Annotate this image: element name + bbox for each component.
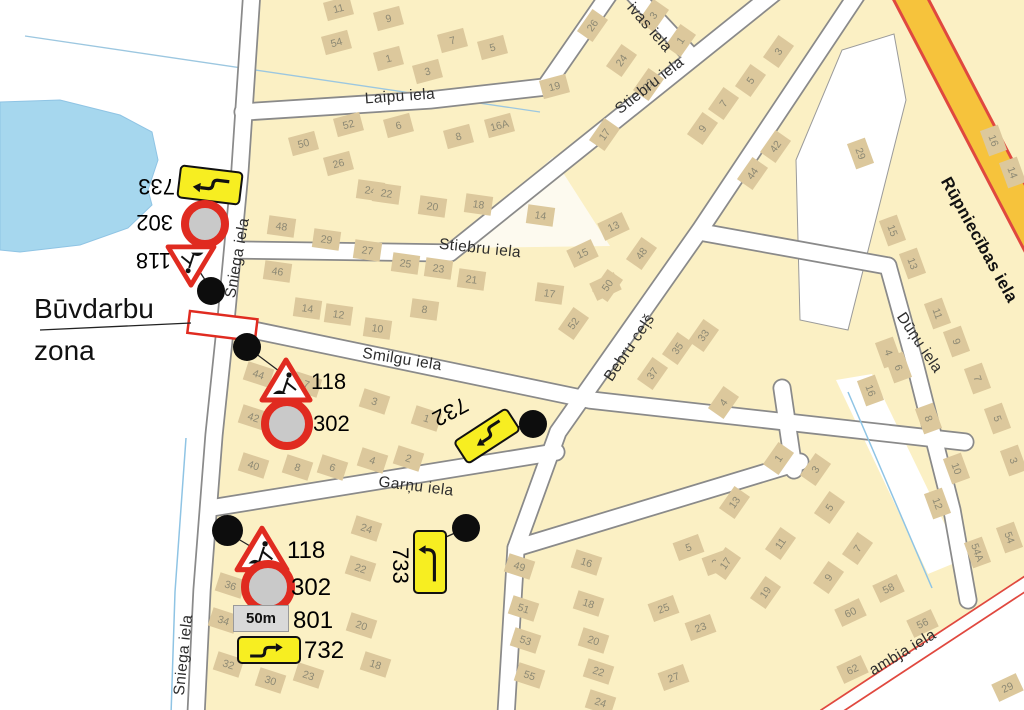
sign-number-733: 733 [387,547,413,591]
detour-sign-733-bottom [413,530,447,594]
sign-number-118: 118 [311,369,346,395]
distance-plate-text: 50m [246,610,276,627]
map-canvas: 1195417535268502616A19201814242248292725… [0,0,1024,710]
no-vehicles-sign-302-mid [261,398,313,450]
turn-arrow-icon [415,532,445,592]
house-number: 12 [323,303,352,326]
sign-number-801: 801 [293,607,333,635]
house-number: 22 [371,182,400,205]
sign-number-302: 302 [291,574,331,602]
house-number: 18 [463,193,492,216]
turn-arrow-icon [239,638,299,662]
distance-plate-801: 50m [233,605,289,632]
house-number: 14 [525,204,554,227]
house-number: 21 [456,268,485,291]
zone-label-line1: Būvdarbu [34,288,154,330]
house-number: 17 [534,282,563,305]
house-number: 23 [423,257,452,280]
house-number: 20 [417,195,446,218]
house-number: 14 [292,297,321,320]
zone-label-line2: zona [34,330,154,372]
roadworks-icon [258,356,314,404]
house-number: 46 [262,260,291,283]
detour-sign-732-bottom [237,636,301,664]
sign-number-302: 302 [129,209,173,235]
construction-zone-label: Būvdarbu zona [34,288,154,372]
sign-number-118: 118 [287,537,325,565]
sign-post-dot [197,277,225,305]
house-number: 48 [266,215,295,238]
sign-number-732: 732 [304,637,344,665]
house-number: 29 [311,228,340,251]
turn-arrow-icon [178,166,241,203]
sign-post-dot [452,514,480,542]
house-number: 8 [409,298,438,321]
sign-post-dot [233,333,261,361]
house-number: 25 [390,252,419,275]
house-number: 10 [362,317,391,340]
sign-post-dot [519,410,547,438]
house-number: 27 [352,239,381,262]
sign-number-302: 302 [313,411,350,437]
sign-number-733: 733 [131,173,175,199]
sign-number-118: 118 [127,247,171,273]
